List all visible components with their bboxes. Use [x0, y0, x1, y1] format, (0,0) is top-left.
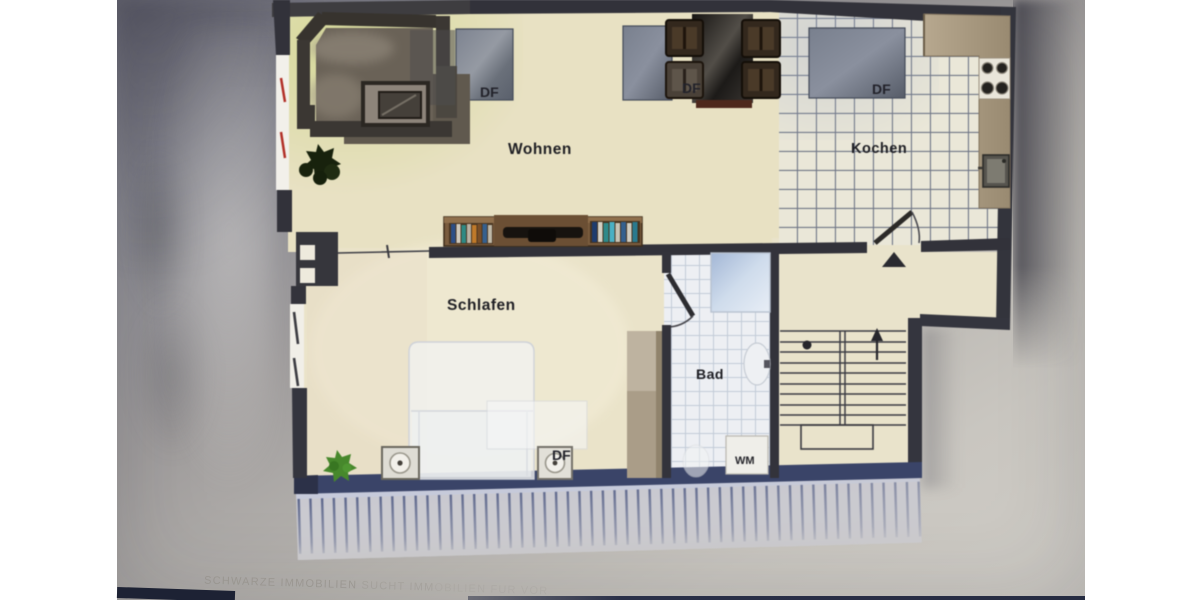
- svg-text:WM: WM: [735, 455, 755, 467]
- svg-text:Schlafen: Schlafen: [447, 297, 516, 314]
- svg-text:DF: DF: [872, 81, 891, 97]
- svg-text:DF: DF: [552, 447, 571, 463]
- svg-text:DF: DF: [682, 80, 701, 96]
- svg-text:DF: DF: [480, 84, 499, 100]
- svg-text:Bad: Bad: [696, 366, 724, 382]
- svg-text:Wohnen: Wohnen: [508, 141, 572, 158]
- svg-text:Kochen: Kochen: [851, 141, 907, 157]
